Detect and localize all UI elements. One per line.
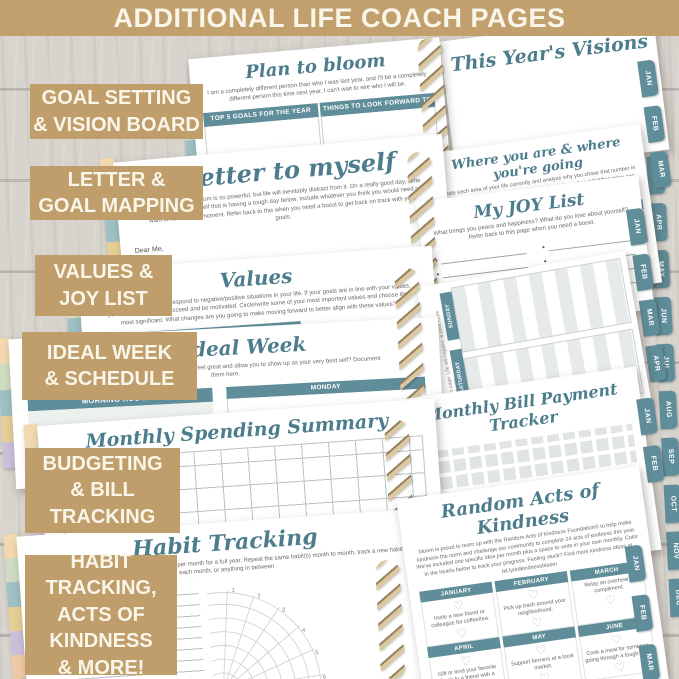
page-title: This Year's Visions [441, 29, 657, 77]
radial-number: 1 [231, 587, 235, 593]
month-tab-dec: DEC [669, 578, 679, 617]
month-tab-aug: AUG [659, 390, 678, 429]
feature-label-habit-tracking: HABIT TRACKING, ACTS OF KINDNESS & MORE! [25, 555, 177, 675]
radial-number: 5 [315, 650, 319, 656]
radial-number: 3 [281, 607, 285, 613]
feature-label-ideal-week: IDEAL WEEK & SCHEDULE [22, 332, 197, 400]
feature-label-goal-setting: GOAL SETTING & VISION BOARD [30, 84, 203, 139]
feature-label-values-joy: VALUES & JOY LIST [35, 255, 172, 316]
feature-label-budgeting: BUDGETING & BILL TRACKING [25, 448, 180, 533]
banner-title: ADDITIONAL LIFE COACH PAGES [113, 3, 565, 34]
header-banner: ADDITIONAL LIFE COACH PAGES [0, 0, 679, 36]
radial-number: 4 [301, 628, 305, 634]
month-tab-mar: MAR [650, 151, 672, 189]
month-tab-oct: OCT [664, 484, 679, 523]
product-infographic: JAN FEB MAR APR MAY JUN JUL AUG SEP OCT … [0, 0, 679, 679]
radial-number: 2 [257, 593, 261, 599]
month-tab-jan: JAN [636, 397, 658, 435]
month-tab-nov: NOV [666, 531, 679, 570]
feature-label-letter-goal-mapping: LETTER & GOAL MAPPING [30, 166, 203, 220]
radial-number: 6 [322, 674, 326, 679]
month-tab-sep: SEP [661, 437, 679, 476]
